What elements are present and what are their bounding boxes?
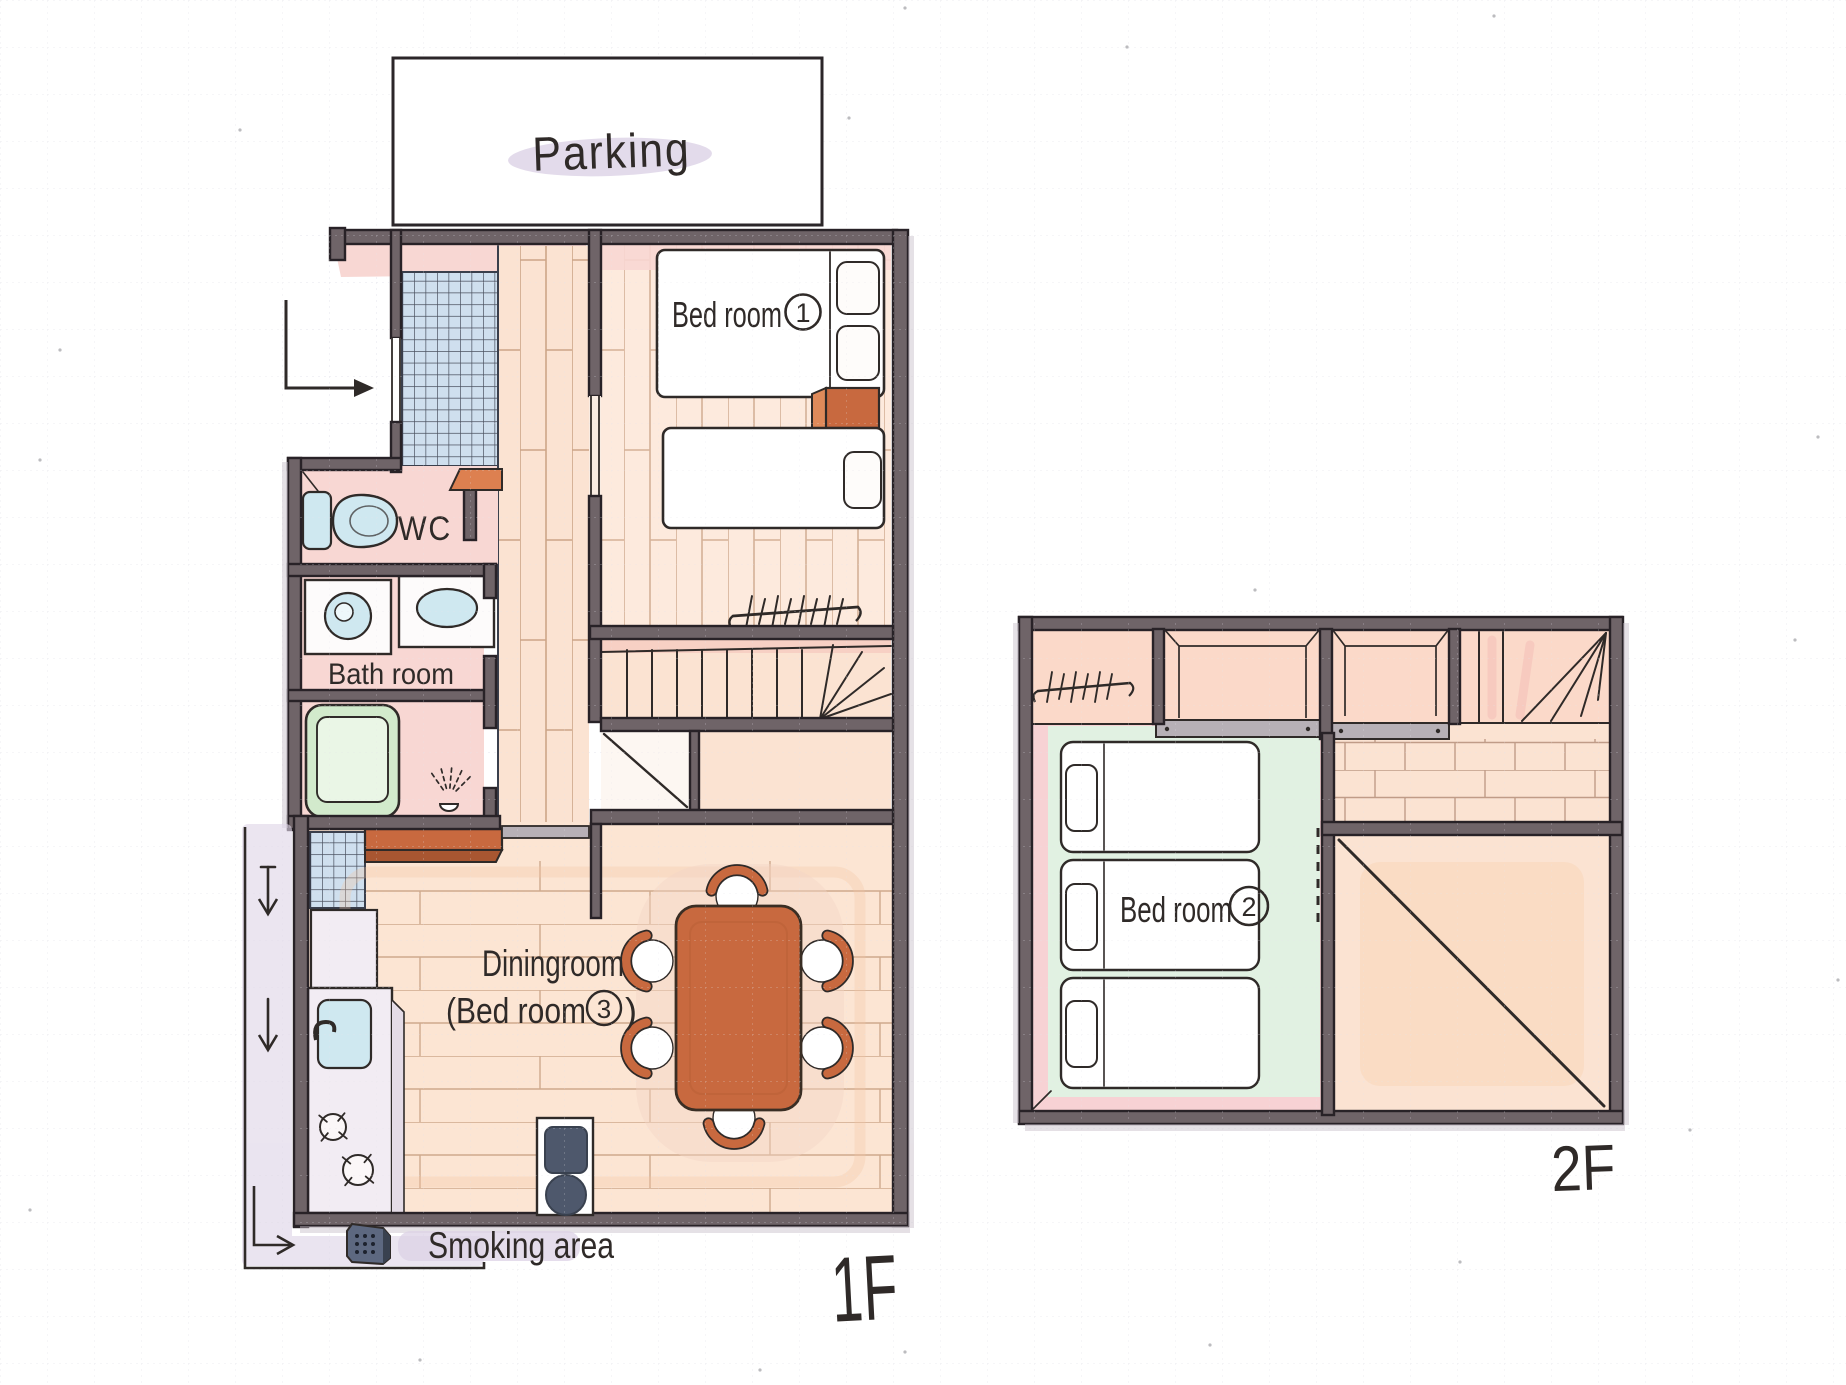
svg-text:Parking: Parking [532,123,692,181]
svg-text:1F: 1F [829,1236,900,1341]
svg-text:2F: 2F [1550,1131,1616,1205]
svg-text:Smoking area: Smoking area [428,1225,614,1266]
